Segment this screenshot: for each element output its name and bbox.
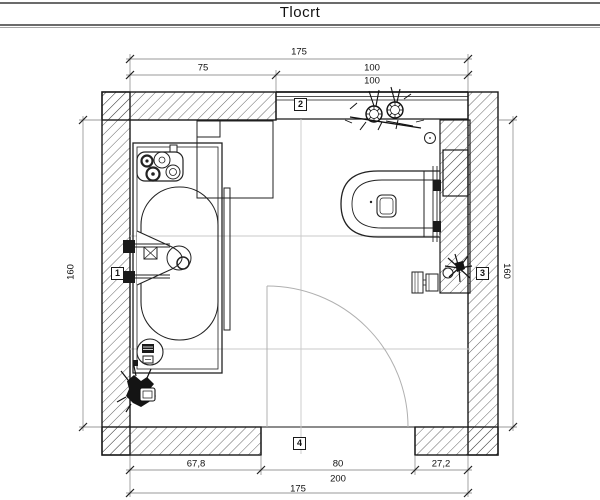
door-swing: [267, 286, 408, 427]
plant-window-sill: [345, 87, 424, 130]
floor-plan-drawing: [0, 0, 600, 500]
cistern-box: [443, 150, 468, 196]
floor-plan-sheet: Tlocrt 175 75 100 100 160 160 67,8 80 27…: [0, 0, 600, 500]
wall-marker-3: 3: [476, 267, 489, 280]
dim-top-segment-right: 100: [364, 63, 380, 73]
dim-bottom-overall: 175: [290, 484, 306, 494]
dim-bottom-door-width: 80: [333, 459, 344, 469]
dim-window-note: 100: [364, 76, 380, 86]
wall-marker-4: 4: [293, 437, 306, 450]
dim-bottom-segment-right: 27,2: [432, 459, 451, 469]
dim-bottom-segment-left: 67,8: [187, 459, 206, 469]
dim-right-height: 160: [501, 263, 511, 279]
washing-machine: [197, 121, 273, 198]
dim-door-note: 200: [330, 474, 346, 484]
wall-marker-1: 1: [111, 267, 124, 280]
dim-top-segment-left: 75: [198, 63, 209, 73]
bathtub-controls: [137, 145, 183, 181]
drain-circle: [425, 133, 436, 144]
door-opening: [261, 427, 415, 455]
bathtub-drain: [133, 339, 163, 366]
wall-marker-2: 2: [294, 98, 307, 111]
dim-top-overall: 175: [291, 47, 307, 57]
toilet: [341, 166, 441, 242]
page-title: Tlocrt: [0, 4, 600, 21]
dim-left-height: 160: [66, 264, 76, 280]
